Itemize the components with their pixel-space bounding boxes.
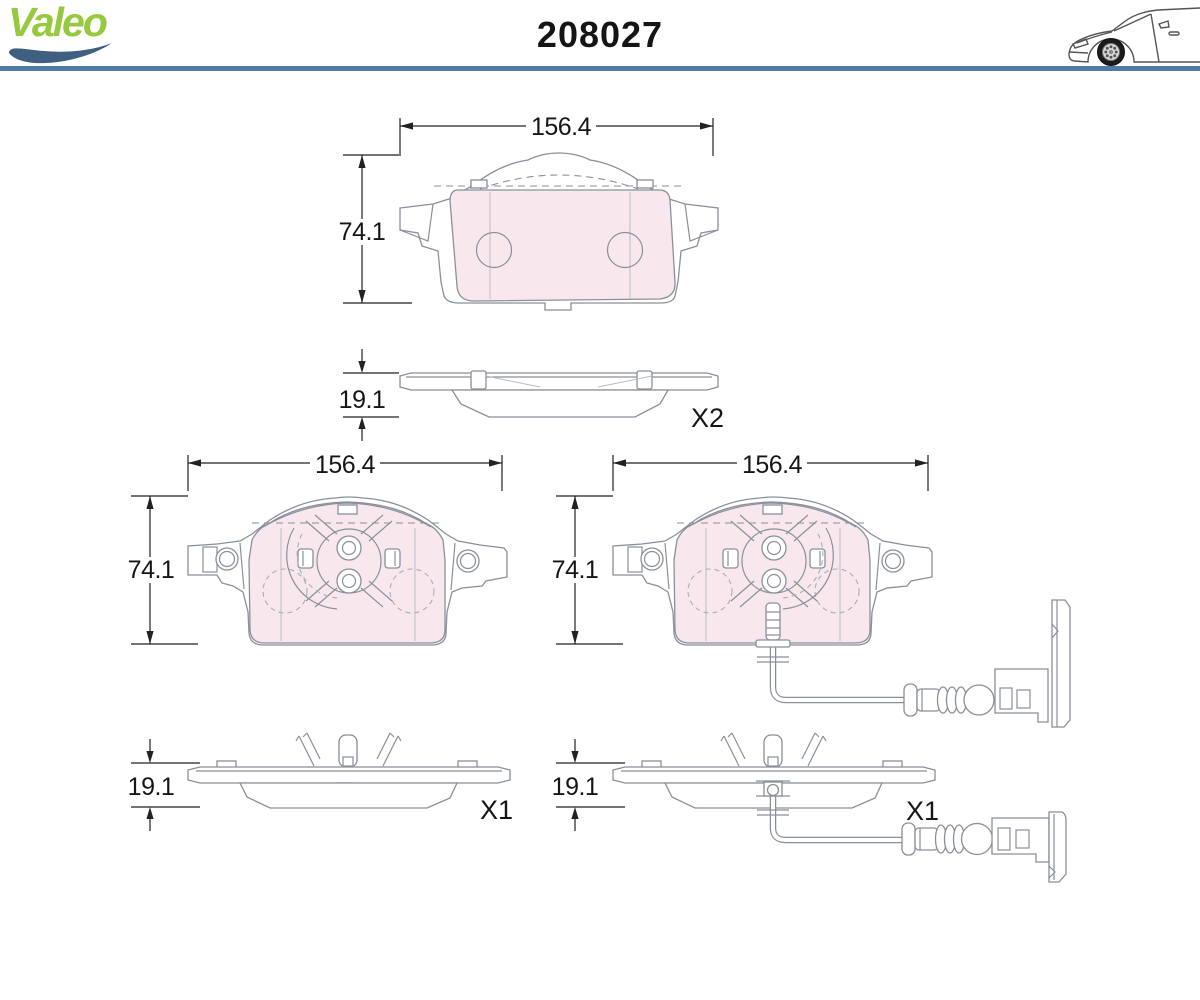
dim-label-thickness-bottom-left: 19.1 [123, 774, 180, 800]
quantity-label-bottom-right: X1 [906, 798, 939, 825]
dim-label-height-bottom-left: 74.1 [123, 557, 180, 583]
quantity-label-top: X2 [691, 405, 724, 432]
bottom-left-pad-side-view [188, 733, 510, 808]
top-pad-side-view [400, 371, 718, 417]
dim-label-thickness-top: 19.1 [334, 387, 391, 413]
dim-label-thickness-bottom-right: 19.1 [547, 774, 604, 800]
quantity-label-bottom-left: X1 [480, 797, 513, 824]
dim-label-width-top: 156.4 [526, 114, 596, 140]
dim-label-height-bottom-right: 74.1 [547, 557, 604, 583]
dim-label-height-top: 74.1 [334, 219, 391, 245]
brake-pad-drawings [0, 0, 1200, 1000]
top-pad-front-view [400, 153, 718, 310]
dim-label-width-bottom-left: 156.4 [310, 452, 380, 478]
dim-label-width-bottom-right: 156.4 [737, 452, 807, 478]
bottom-left-pad-back-view [188, 497, 507, 645]
